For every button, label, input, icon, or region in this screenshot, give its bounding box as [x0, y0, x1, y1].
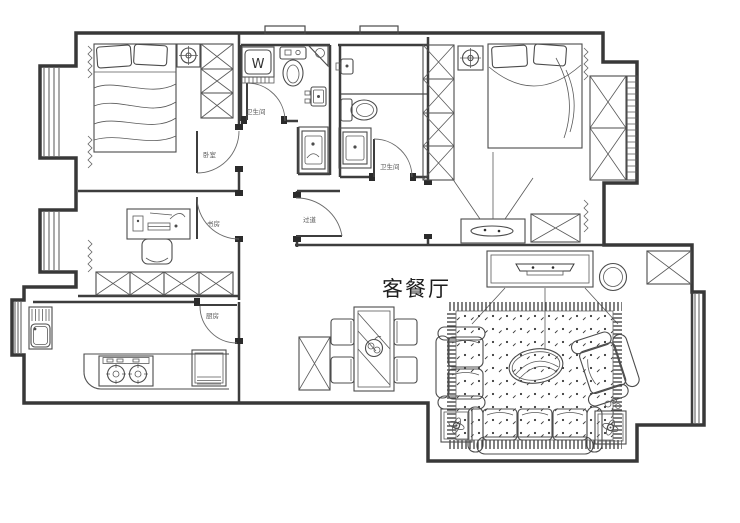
- curtain-zigzag: [88, 240, 92, 272]
- area-rug-icon: [447, 302, 622, 449]
- curtain-zigzag: [584, 48, 588, 80]
- study-door-label: 书房: [207, 219, 220, 228]
- washing-machine-icon: W: [242, 47, 274, 83]
- kitchen-sink-icon: [29, 307, 52, 349]
- dining-chair-icon: [394, 357, 417, 383]
- sideboard-icon: [299, 337, 330, 390]
- door-jambs: [194, 116, 432, 344]
- washing-machine-label: W: [252, 57, 265, 72]
- double-bed-icon: [488, 44, 582, 148]
- floor-plan-drawing: W 卫生间: [0, 0, 740, 523]
- dining-chair-icon: [394, 319, 417, 345]
- floor-plan-canvas: W 卫生间: [0, 0, 740, 523]
- doors: [197, 83, 412, 343]
- dining-area: [299, 307, 417, 391]
- low-cabinet-icon: [96, 272, 233, 295]
- vanity-sink-icon: [339, 128, 371, 168]
- room-bathroom1: W 卫生间: [242, 46, 328, 116]
- kitchen-appliance-icon: [192, 350, 226, 386]
- dining-table-icon: [354, 307, 394, 391]
- curtain-zigzag: [88, 46, 92, 78]
- master-tv-stand-icon: [452, 152, 533, 243]
- corner-cabinet-icon: [647, 251, 691, 284]
- double-bed-icon: [94, 44, 176, 152]
- toilet-icon: [341, 99, 377, 121]
- room-master-bedroom: [423, 44, 626, 243]
- hallway-door-label: 过道: [303, 215, 317, 224]
- door-kitchen: [200, 305, 237, 343]
- wardrobe-icon: [590, 76, 626, 180]
- wall-basin-icon: [305, 87, 326, 106]
- gas-stove-icon: [99, 356, 153, 386]
- ceiling-fan-icon: [458, 46, 483, 70]
- toilet-icon: [280, 47, 306, 86]
- door-study: [197, 197, 239, 239]
- round-stool-icon: [600, 264, 627, 291]
- window-living-east: [695, 294, 699, 423]
- small-sink-icon: [336, 59, 353, 74]
- door-bathroom2: [374, 139, 412, 177]
- corner-shelf-icon: [309, 46, 328, 66]
- window-bay-study: [44, 212, 59, 270]
- window-kitchen: [15, 302, 21, 353]
- window-bay-bedroom: [44, 68, 59, 156]
- bathroom2-label: 卫生间: [380, 162, 400, 171]
- curtain-zigzag: [584, 200, 588, 232]
- kitchen-door-label: 厨房: [206, 311, 219, 320]
- room-bathroom2: 卫生间: [336, 59, 400, 171]
- desk-with-computer-icon: [127, 209, 190, 239]
- bedroom-door-label: 卧室: [203, 150, 217, 159]
- tv-cabinet-icon: [487, 251, 593, 287]
- bathroom1-label: 卫生间: [246, 107, 266, 116]
- living-dining-label: 客餐厅: [382, 277, 451, 301]
- vanity-sink-icon: [299, 127, 328, 173]
- curtain-zigzag: [88, 136, 92, 168]
- desk-chair-icon: [142, 239, 172, 264]
- room-kitchen: 厨房: [29, 307, 229, 389]
- dining-chair-icon: [331, 319, 354, 345]
- cabinet-icon: [531, 214, 580, 242]
- room-bedroom: [88, 44, 233, 168]
- ceiling-fan-icon: [177, 44, 200, 67]
- wardrobe-icon: [201, 44, 233, 118]
- dining-chair-icon: [331, 357, 354, 383]
